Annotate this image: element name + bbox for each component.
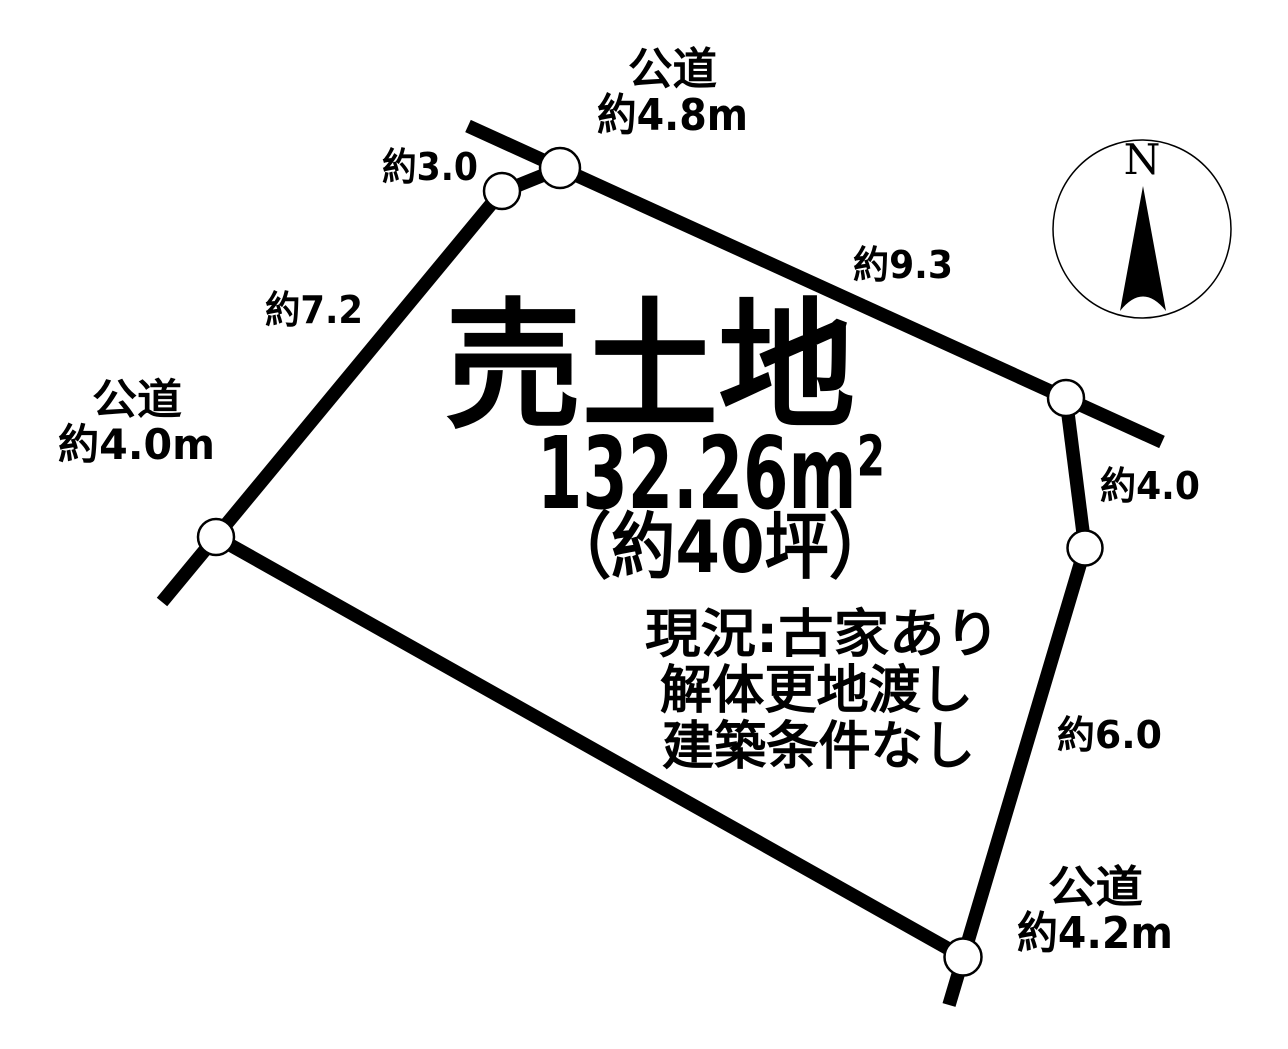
edge-label-east-upper: 約4.0 — [1100, 464, 1200, 508]
edge-label-west: 約7.2 — [265, 288, 363, 332]
road-label-top-type: 公道 — [628, 44, 717, 95]
plot-svg: 公道 約4.8m 公道 約4.0m 公道 約4.2m 約3.0 約9.3 約7.… — [0, 0, 1288, 1049]
boundary-point-bottom — [945, 939, 982, 976]
plot-note-3: 建築条件なし — [662, 717, 975, 777]
boundary-point-top-left — [484, 173, 520, 209]
boundary-point-left — [198, 519, 234, 555]
land-plot-diagram: 公道 約4.8m 公道 約4.0m 公道 約4.2m 約3.0 約9.3 約7.… — [0, 0, 1288, 1049]
plot-area-tsubo: （約40坪） — [547, 505, 893, 589]
edge-label-northeast: 約9.3 — [853, 243, 953, 287]
plot-note-1: 現況:古家あり — [645, 605, 1000, 665]
road-label-bottom-type: 公道 — [1048, 862, 1143, 913]
compass: N — [1053, 135, 1231, 318]
road-label-top-width: 約4.8m — [597, 90, 748, 141]
boundary-point-right-upper — [1048, 380, 1084, 416]
compass-north-label: N — [1124, 135, 1161, 184]
boundary-point-top — [540, 148, 580, 188]
edge-label-north-short: 約3.0 — [382, 145, 478, 189]
road-label-left-width: 約4.0m — [58, 420, 215, 469]
road-label-bottom-width: 約4.2m — [1017, 908, 1173, 959]
edge-east-upper-line — [1066, 398, 1085, 548]
edge-label-east-lower: 約6.0 — [1057, 713, 1162, 757]
boundary-point-right-mid — [1068, 531, 1103, 566]
plot-note-2: 解体更地渡し — [660, 661, 973, 721]
road-label-left-type: 公道 — [92, 375, 182, 424]
plot-info: 売土地 132.26m² （約40坪） 現況:古家あり 解体更地渡し 建築条件な… — [445, 286, 1000, 777]
